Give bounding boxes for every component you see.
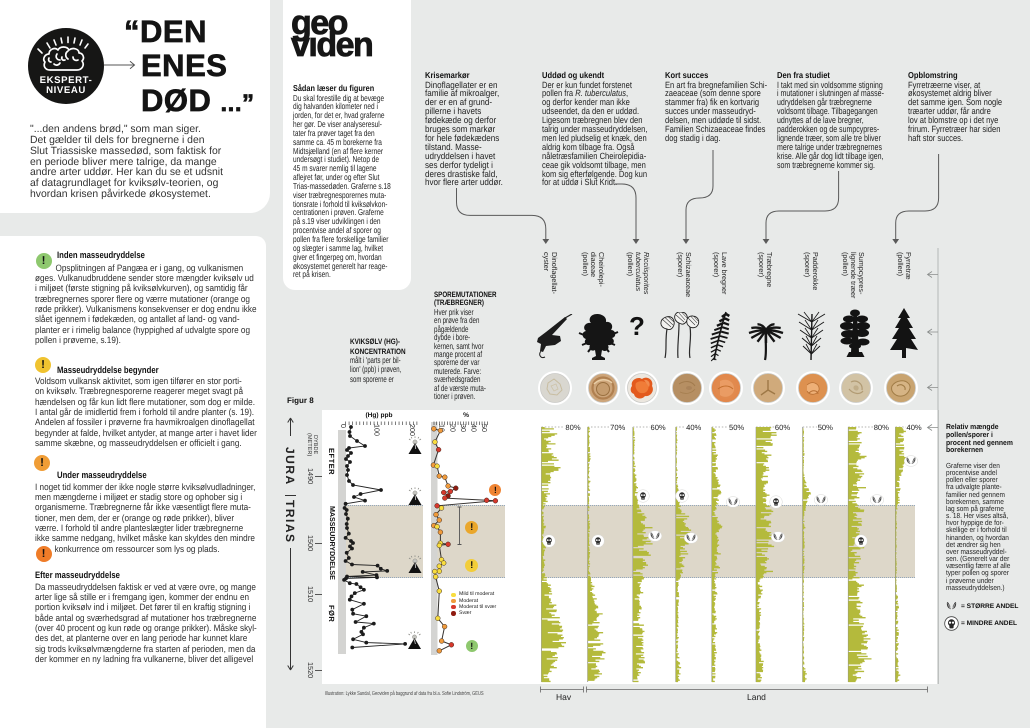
- svg-text:NIVEAU: NIVEAU: [46, 85, 86, 96]
- svg-text:30: 30: [459, 424, 468, 432]
- svg-text:60%: 60%: [775, 423, 790, 432]
- svg-text:50%: 50%: [818, 423, 833, 432]
- svg-text:80%: 80%: [874, 423, 889, 432]
- svg-text:60%: 60%: [650, 423, 665, 432]
- svg-text:50%: 50%: [729, 423, 744, 432]
- svg-text:40: 40: [470, 424, 479, 432]
- svg-text:80%: 80%: [565, 423, 580, 432]
- svg-text:20: 20: [448, 424, 457, 432]
- svg-text:100: 100: [373, 424, 382, 436]
- svg-text:50: 50: [480, 424, 489, 432]
- svg-text:0: 0: [339, 424, 348, 428]
- svg-text:70%: 70%: [610, 423, 625, 432]
- svg-text:200: 200: [408, 424, 417, 436]
- svg-text:40%: 40%: [686, 423, 701, 432]
- svg-text:%: %: [463, 412, 469, 419]
- svg-text:(Hg) ppb: (Hg) ppb: [365, 412, 392, 419]
